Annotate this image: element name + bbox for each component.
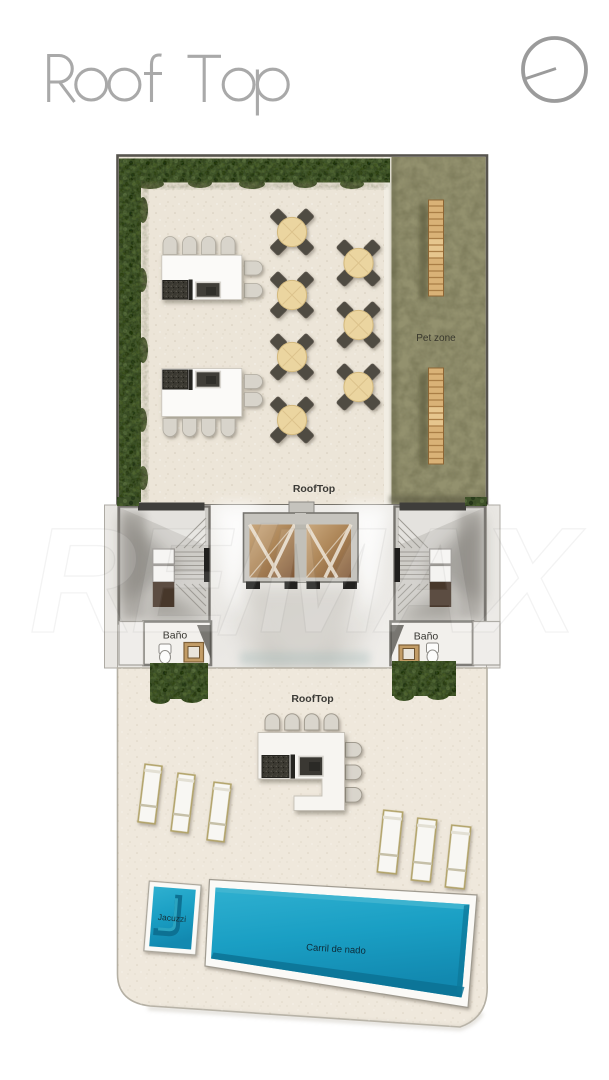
svg-text:Pet zone: Pet zone	[416, 333, 456, 344]
svg-text:RE/MAX: RE/MAX	[29, 496, 585, 664]
svg-text:RoofTop: RoofTop	[291, 693, 333, 705]
svg-text:RoofTop: RoofTop	[293, 483, 335, 495]
